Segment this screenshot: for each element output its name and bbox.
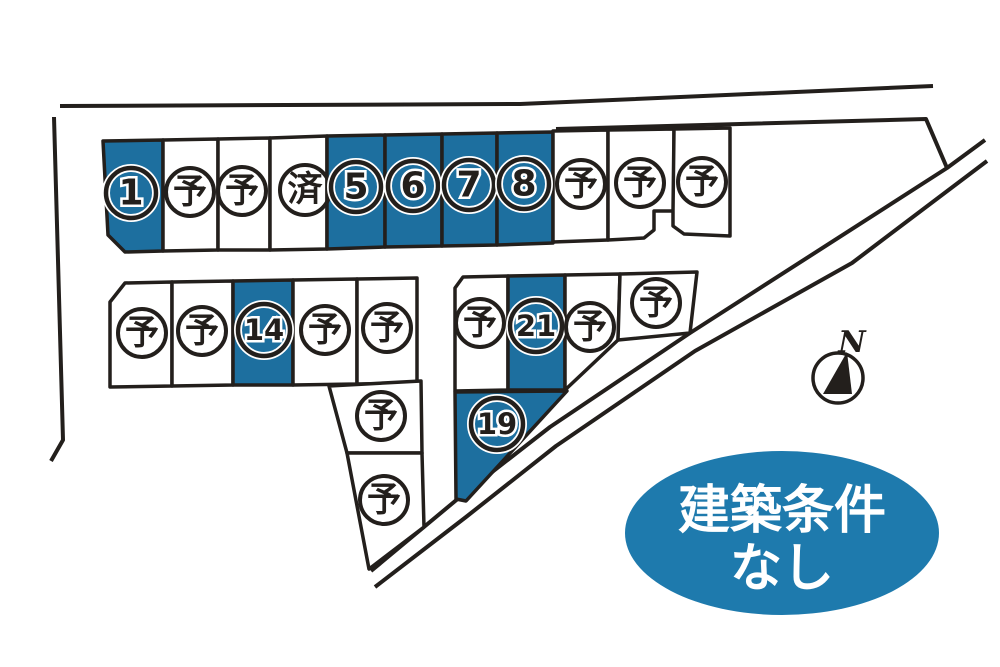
- lot-badge-15: 予: [301, 306, 349, 354]
- lot-map-drawing: 1 予 予 済 5 6 7 8 予 予 予: [0, 0, 1000, 667]
- lot-badge-17: 予: [357, 392, 405, 440]
- lot-status-mark: 済: [287, 170, 323, 210]
- boundary-left-line: [51, 117, 63, 461]
- lot-status-mark: 予: [308, 310, 342, 350]
- lot-status-mark: 予: [463, 303, 497, 343]
- boundary-top-line: [60, 86, 933, 106]
- lot-number: 14: [244, 313, 284, 347]
- lot-number: 5: [343, 167, 368, 208]
- lot-badge-23: 予: [632, 279, 680, 327]
- lot-badge-2: 予: [166, 168, 214, 216]
- lot-badge-12: 予: [118, 309, 166, 357]
- annotation-oval: 建築条件 なし: [625, 451, 939, 615]
- lot-badge-18: 予: [360, 476, 408, 524]
- lot-status-mark: 予: [573, 307, 607, 347]
- lot-status-mark: 予: [173, 172, 207, 212]
- lot-number: 6: [400, 166, 425, 207]
- compass: N: [813, 325, 867, 403]
- lot-badge-9: 予: [557, 160, 605, 208]
- lot-badge-16: 予: [363, 304, 411, 352]
- lot-status-mark: 予: [125, 313, 159, 353]
- lot-badge-13: 予: [178, 307, 226, 355]
- lot-status-mark: 予: [564, 164, 598, 204]
- annotation-text-line1: 建築条件: [678, 481, 886, 541]
- lot-status-mark: 予: [623, 163, 657, 203]
- lot-number: 8: [511, 164, 536, 205]
- lot-badge-4: 済: [280, 165, 330, 215]
- lot-badge-22: 予: [566, 303, 614, 351]
- lot-status-mark: 予: [364, 396, 398, 436]
- lot-status-mark: 予: [367, 480, 401, 520]
- lot-status-mark: 予: [225, 171, 259, 211]
- lot-badge-20: 予: [456, 299, 504, 347]
- lot-badge-11: 予: [678, 158, 726, 206]
- lot-badge-10: 予: [616, 159, 664, 207]
- lot-status-mark: 予: [370, 308, 404, 348]
- site-plan-page: 1 予 予 済 5 6 7 8 予 予 予: [0, 0, 1000, 667]
- lot-number: 19: [477, 407, 517, 441]
- lot-status-mark: 予: [685, 162, 719, 202]
- lot-status-mark: 予: [639, 283, 673, 323]
- lot-number: 7: [456, 165, 481, 206]
- lot-number: 21: [516, 309, 556, 343]
- lot-badge-3: 予: [218, 167, 266, 215]
- lot-number: 1: [118, 173, 143, 214]
- annotation-text-line2: なし: [730, 539, 834, 599]
- lot-status-mark: 予: [185, 311, 219, 351]
